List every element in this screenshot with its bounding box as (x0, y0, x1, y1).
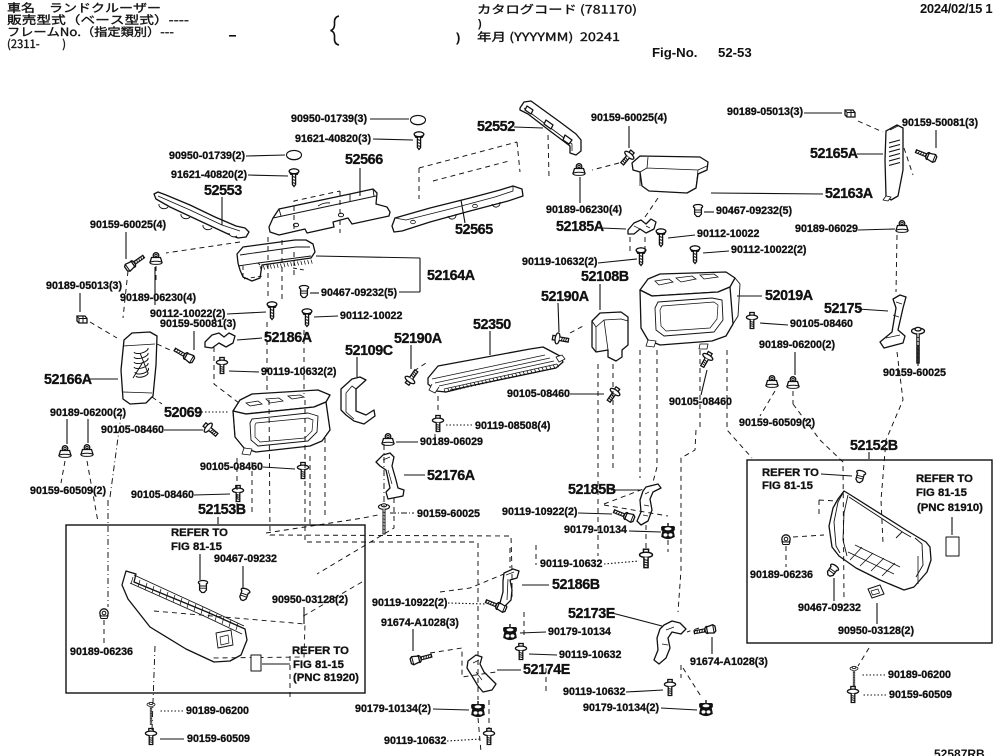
svg-text:90467-09232(5): 90467-09232(5) (716, 205, 793, 217)
svg-text:90189-06200: 90189-06200 (888, 669, 951, 681)
svg-text:52553: 52553 (204, 183, 242, 199)
svg-text:Fig-No.: Fig-No. (652, 45, 697, 60)
svg-text:FIG 81-15: FIG 81-15 (916, 487, 967, 499)
svg-text:90119-10632: 90119-10632 (384, 735, 446, 747)
svg-text:90159-60025(4): 90159-60025(4) (90, 219, 167, 231)
svg-text:52164A: 52164A (427, 268, 475, 284)
svg-text:90189-05013(3): 90189-05013(3) (727, 106, 804, 118)
svg-text:90179-10134(2): 90179-10134(2) (355, 703, 432, 715)
svg-text:REFER TO: REFER TO (916, 473, 973, 485)
svg-text:FIG 81-15: FIG 81-15 (762, 480, 813, 492)
svg-text:90159-60509(2): 90159-60509(2) (30, 485, 107, 497)
svg-text:): ) (478, 18, 482, 30)
svg-text:52163A: 52163A (825, 186, 873, 202)
svg-text:90189-05013(3): 90189-05013(3) (46, 280, 123, 292)
svg-text:52109C: 52109C (345, 343, 393, 359)
svg-text:90112-10022: 90112-10022 (340, 310, 402, 322)
svg-text:52186B: 52186B (552, 577, 600, 593)
svg-text:): ) (456, 30, 460, 45)
svg-text:90105-08460: 90105-08460 (669, 396, 732, 408)
svg-text:90119-10632(2): 90119-10632(2) (261, 366, 337, 378)
svg-text:90950-03128(2): 90950-03128(2) (838, 625, 915, 637)
svg-text:91674-A1028(3): 91674-A1028(3) (381, 617, 459, 629)
svg-text:52186A: 52186A (264, 330, 312, 346)
svg-text:90950-01739(3): 90950-01739(3) (291, 113, 368, 125)
svg-text:90467-09232(5): 90467-09232(5) (321, 287, 398, 299)
svg-text:90189-06029: 90189-06029 (420, 436, 483, 448)
svg-text:90189-06200: 90189-06200 (186, 705, 249, 717)
svg-text:90159-60025(4): 90159-60025(4) (591, 112, 668, 124)
svg-text:52587RB: 52587RB (934, 747, 985, 756)
svg-text:91674-A1028(3): 91674-A1028(3) (690, 656, 768, 668)
svg-text:90467-09232: 90467-09232 (798, 602, 861, 614)
svg-text:52152B: 52152B (850, 438, 898, 454)
svg-text:52350: 52350 (473, 317, 511, 333)
svg-text:FIG 81-15: FIG 81-15 (171, 541, 222, 553)
svg-text:52190A: 52190A (394, 331, 442, 347)
svg-text:2024/02/15 1: 2024/02/15 1 (920, 1, 992, 16)
svg-text:90950-01739(2): 90950-01739(2) (169, 150, 246, 162)
svg-text:52176A: 52176A (427, 468, 475, 484)
svg-text:52069: 52069 (164, 405, 202, 421)
svg-text:REFER TO: REFER TO (292, 645, 349, 657)
svg-text:52565: 52565 (455, 222, 493, 238)
svg-text:52019A: 52019A (765, 288, 813, 304)
svg-text:90112-10022: 90112-10022 (697, 228, 759, 240)
svg-text:90105-08460: 90105-08460 (790, 318, 853, 330)
svg-text:52566: 52566 (345, 152, 383, 168)
svg-text:90119-10632: 90119-10632 (540, 558, 602, 570)
svg-text:52175: 52175 (824, 301, 862, 317)
svg-text:90189-06029: 90189-06029 (795, 223, 858, 235)
svg-text:90119-10922(2): 90119-10922(2) (372, 597, 448, 609)
svg-text:52108B: 52108B (581, 269, 629, 285)
svg-text:90189-06200(2): 90189-06200(2) (50, 407, 127, 419)
svg-text:90189-06236: 90189-06236 (750, 569, 813, 581)
svg-text:52-53: 52-53 (718, 45, 752, 60)
svg-text:90112-10022(2): 90112-10022(2) (731, 244, 807, 256)
svg-text:90119-10922(2): 90119-10922(2) (502, 506, 578, 518)
svg-text:(PNC 81910): (PNC 81910) (917, 502, 983, 514)
svg-text:52185A: 52185A (556, 219, 604, 235)
svg-text:91621-40820(3): 91621-40820(3) (295, 133, 372, 145)
svg-text:90159-60509: 90159-60509 (187, 733, 250, 745)
svg-text:(PNC 81920): (PNC 81920) (293, 672, 359, 684)
svg-text:90119-10632: 90119-10632 (559, 649, 621, 661)
svg-text:90119-08508(4): 90119-08508(4) (475, 420, 551, 432)
svg-text:90179-10134: 90179-10134 (564, 524, 627, 536)
svg-text:90119-10632(2): 90119-10632(2) (522, 256, 598, 268)
svg-text:90189-06230(4): 90189-06230(4) (546, 204, 623, 216)
svg-text:90189-06236: 90189-06236 (70, 646, 133, 658)
svg-text:90159-50081(3): 90159-50081(3) (160, 318, 237, 330)
svg-text:52185B: 52185B (568, 482, 616, 498)
svg-text:90189-06200(2): 90189-06200(2) (759, 339, 836, 351)
svg-text:90467-09232: 90467-09232 (214, 553, 277, 565)
svg-text:90159-60025: 90159-60025 (417, 508, 480, 520)
svg-text:REFER TO: REFER TO (762, 467, 819, 479)
svg-text:90179-10134(2): 90179-10134(2) (583, 702, 660, 714)
svg-text:90950-03128(2): 90950-03128(2) (272, 594, 349, 606)
svg-text:90189-06230(4): 90189-06230(4) (120, 292, 197, 304)
svg-text:52153B: 52153B (198, 502, 246, 518)
svg-text:90179-10134: 90179-10134 (548, 626, 611, 638)
svg-text:90159-50081(3): 90159-50081(3) (902, 117, 979, 129)
svg-text:90159-60025: 90159-60025 (883, 367, 946, 379)
svg-text:90105-08460: 90105-08460 (507, 388, 570, 400)
svg-text:52173E: 52173E (568, 606, 615, 622)
svg-text:52190A: 52190A (541, 289, 589, 305)
svg-text:90159-60509(2): 90159-60509(2) (739, 417, 816, 429)
svg-text:52174E: 52174E (523, 662, 570, 678)
svg-text:REFER TO: REFER TO (171, 527, 228, 539)
svg-text:90105-08460: 90105-08460 (131, 489, 194, 501)
svg-text:90105-08460: 90105-08460 (101, 424, 164, 436)
svg-text:90105-08460: 90105-08460 (200, 461, 263, 473)
svg-text:52166A: 52166A (44, 372, 92, 388)
svg-text:90159-60509: 90159-60509 (889, 689, 952, 701)
svg-text:FIG 81-15: FIG 81-15 (293, 659, 344, 671)
svg-text:52165A: 52165A (810, 146, 858, 162)
svg-text:52552: 52552 (477, 119, 515, 135)
svg-text:91621-40820(2): 91621-40820(2) (171, 169, 248, 181)
svg-text:90119-10632: 90119-10632 (563, 686, 625, 698)
